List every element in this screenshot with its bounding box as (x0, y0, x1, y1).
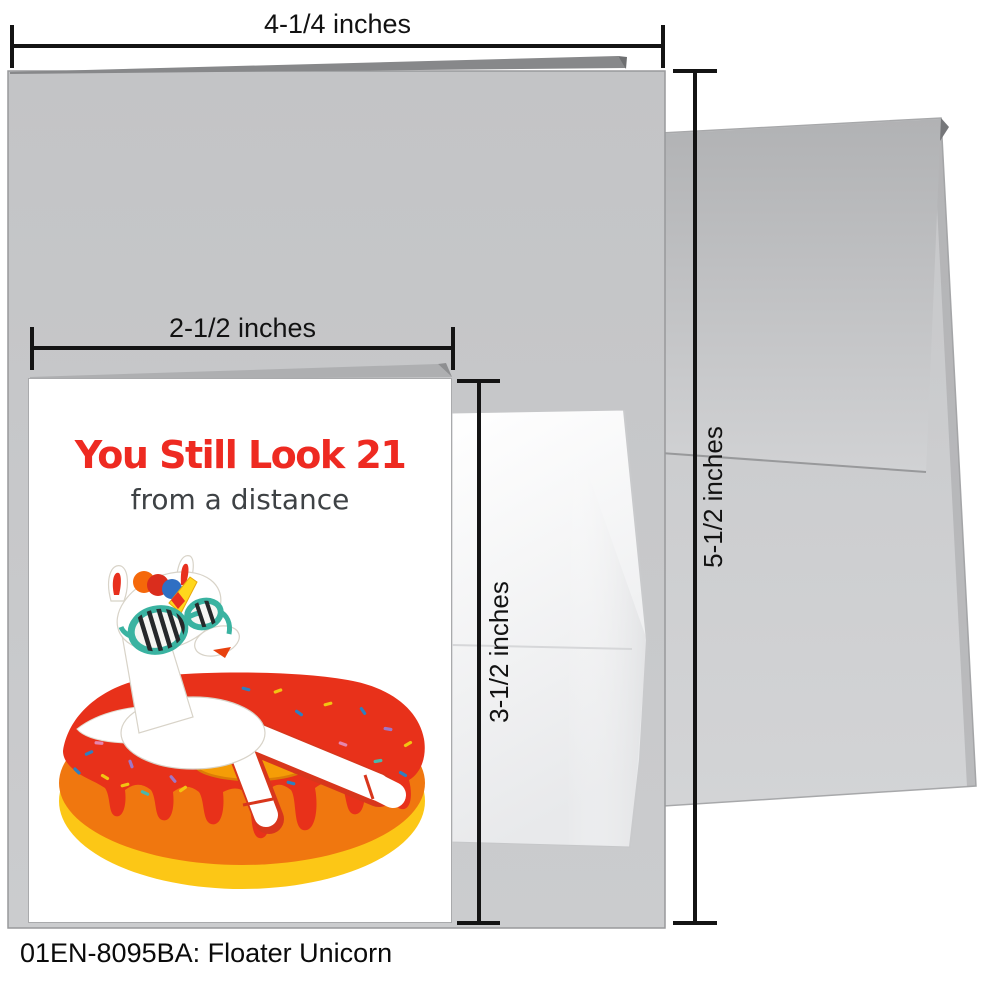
product-caption: 01EN-8095BA: Floater Unicorn (20, 938, 392, 969)
dimension-label: 5-1/2 inches (699, 397, 727, 597)
card-front: You Still Look 21 from a distance (28, 378, 452, 923)
floater-unicorn-illustration (41, 537, 441, 909)
card-title: You Still Look 21 (29, 433, 451, 477)
dimension-front-height: 3-1/2 inches (457, 379, 500, 925)
dimension-line (10, 44, 665, 48)
dimension-line (693, 69, 697, 925)
envelope-corner-notch (940, 118, 949, 141)
dimension-label: 3-1/2 inches (485, 552, 513, 752)
dimension-line (477, 379, 481, 925)
dimension-folded-height: 5-1/2 inches (673, 69, 717, 925)
dimension-folded-width: 4-1/4 inches (10, 25, 665, 68)
greeting-card-product-mockup: You Still Look 21 from a distance (0, 0, 984, 984)
card-subtitle: from a distance (29, 483, 451, 516)
dimension-label: 4-1/4 inches (10, 9, 665, 40)
dimension-line (30, 346, 455, 350)
dimension-front-width: 2-1/2 inches (30, 327, 455, 370)
dimension-label: 2-1/2 inches (30, 313, 455, 344)
